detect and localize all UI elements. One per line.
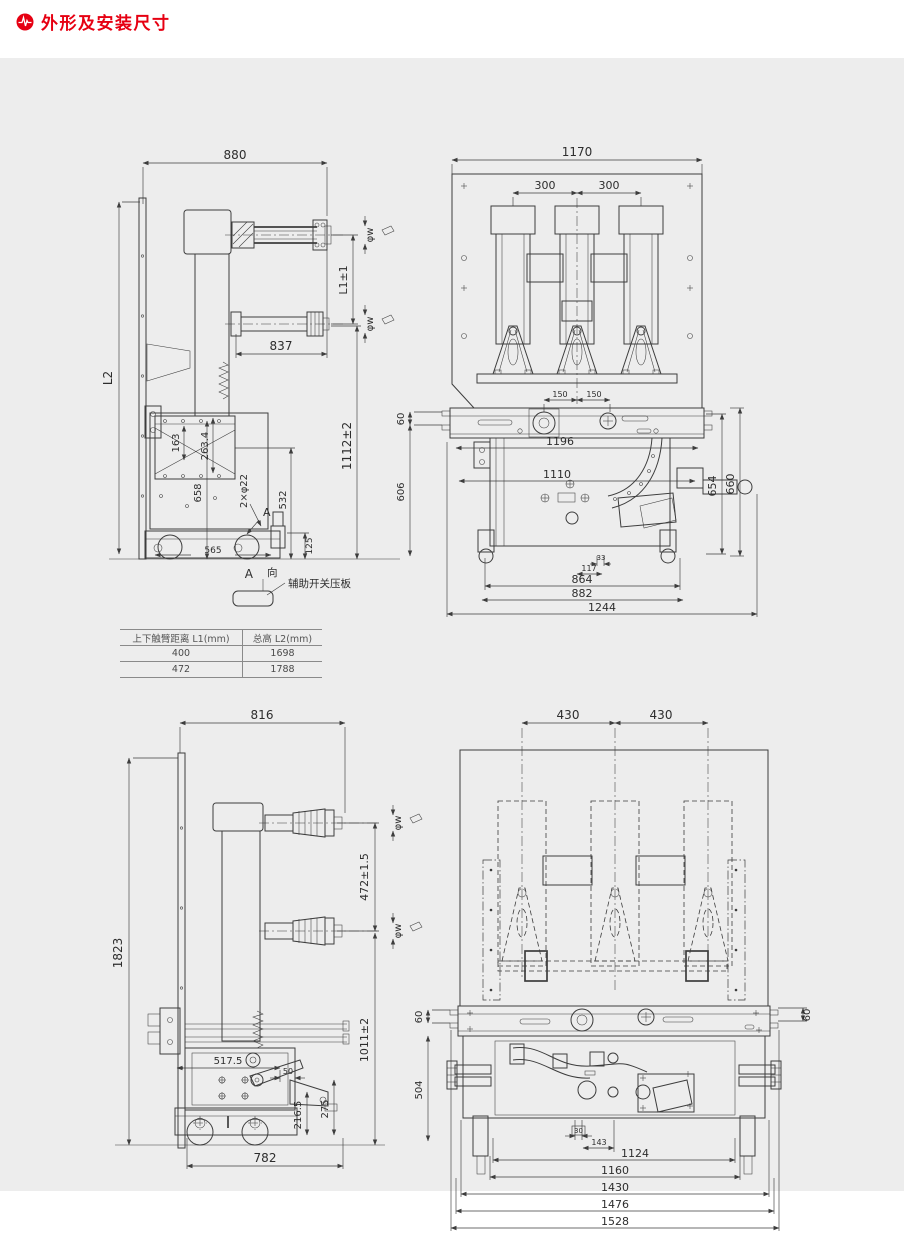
- drawing-bottom-side-view: 816 1823 472±1.5 φw φw 1011±2 517.5 50 2…: [85, 708, 445, 1249]
- dim-1112: 1112±2: [340, 422, 354, 470]
- dim-60: 60: [396, 413, 407, 426]
- table-row: 400 1698: [120, 646, 322, 662]
- dim-150-right: 150: [586, 390, 601, 399]
- bfv-dimensions: 430 430 60 60 504 30 143 1124 1160 1430 …: [414, 708, 813, 1231]
- tsv-dimensions: 880 L2 837 L1±1 φw φw 163 263.4 658 2×φ2…: [101, 148, 394, 559]
- dim-1430: 1430: [601, 1181, 629, 1194]
- tsv-structure: [109, 198, 400, 559]
- drawing-top-front-view: 1170 300 300 150 150 60 606 1196 1110 65…: [400, 146, 880, 624]
- cell-l2-1: 1788: [243, 662, 323, 678]
- dim-880: 880: [224, 148, 247, 162]
- drawing-bottom-front-view: 430 430 60 60 504 30 143 1124 1160 1430 …: [415, 708, 819, 1249]
- bsv-structure: [115, 753, 385, 1148]
- dim-430-left: 430: [557, 708, 580, 722]
- dim-117: 117: [581, 564, 596, 573]
- view-a-inner-label: A: [263, 506, 271, 519]
- dim-658: 658: [193, 483, 204, 502]
- dim-50: 50: [283, 1067, 293, 1076]
- page-title: 外形及安装尺寸: [41, 9, 171, 34]
- table-row: 472 1788: [120, 662, 322, 678]
- view-a-label: A: [245, 567, 254, 581]
- dim-L1: L1±1: [337, 265, 350, 294]
- dim-782: 782: [254, 1151, 277, 1165]
- drawing-canvas: 880 L2 837 L1±1 φw φw 163 263.4 658 2×φ2…: [0, 58, 904, 1191]
- dim-125: 125: [305, 537, 315, 554]
- dim-30: 30: [574, 1127, 583, 1135]
- dim-1160: 1160: [601, 1164, 629, 1177]
- dim-1124: 1124: [621, 1147, 649, 1160]
- dim-60-left: 60: [414, 1011, 425, 1024]
- dim-882: 882: [572, 587, 593, 600]
- dim-phiw-lower-b: φw: [393, 924, 404, 939]
- dim-300-right: 300: [599, 179, 620, 192]
- dim-837: 837: [270, 339, 293, 353]
- contact-arm-spec-table: 上下触臂距离 L1(mm) 总高 L2(mm) 400 1698 472 178…: [120, 629, 322, 678]
- dim-holes: 2×φ22: [239, 474, 250, 508]
- dim-60-right: 60: [802, 1009, 813, 1022]
- drawing-top-side-view: 880 L2 837 L1±1 φw φw 163 263.4 658 2×φ2…: [95, 146, 425, 624]
- view-a-direction: 向: [267, 566, 278, 579]
- dim-phiw-upper-b: φw: [393, 816, 404, 831]
- dim-816: 816: [251, 708, 274, 722]
- pole-1: [491, 206, 535, 374]
- dim-33: 33: [597, 554, 606, 562]
- cell-l1-0: 400: [120, 646, 243, 662]
- dim-472: 472±1.5: [358, 853, 371, 901]
- dim-phiw-lower: φw: [365, 317, 376, 332]
- dim-1244: 1244: [588, 601, 616, 614]
- dim-1476: 1476: [601, 1198, 629, 1211]
- dim-phiw-upper: φw: [365, 228, 376, 243]
- cell-l2-0: 1698: [243, 646, 323, 662]
- tfv-structure: [442, 174, 752, 563]
- dim-143: 143: [591, 1138, 606, 1147]
- dim-1170: 1170: [562, 145, 593, 159]
- dim-263: 263.4: [200, 432, 211, 461]
- page-header: 外形及安装尺寸: [0, 0, 904, 58]
- dim-660: 660: [724, 474, 737, 495]
- dim-864: 864: [572, 573, 593, 586]
- dim-1011: 1011±2: [358, 1018, 371, 1062]
- dim-606: 606: [396, 482, 407, 501]
- dim-275: 275: [320, 1099, 331, 1118]
- dim-430-right: 430: [650, 708, 673, 722]
- dim-504: 504: [414, 1080, 425, 1099]
- col-header-l1: 上下触臂距离 L1(mm): [120, 630, 243, 646]
- dim-5175: 517.5: [214, 1056, 243, 1067]
- dim-1823: 1823: [111, 938, 125, 969]
- cell-l1-1: 472: [120, 662, 243, 678]
- dim-300-left: 300: [535, 179, 556, 192]
- dim-L2: L2: [101, 371, 115, 385]
- col-header-l2: 总高 L2(mm): [243, 630, 323, 646]
- dim-565: 565: [204, 546, 221, 556]
- pulse-icon: [16, 13, 34, 31]
- dim-163: 163: [171, 433, 182, 452]
- dim-532: 532: [278, 490, 289, 509]
- table-header-row: 上下触臂距离 L1(mm) 总高 L2(mm): [120, 630, 322, 646]
- tsv-view-a-annotation: A A 向 辅助开关压板: [233, 506, 351, 606]
- dim-654: 654: [706, 476, 719, 497]
- dim-1110: 1110: [543, 468, 571, 481]
- dim-1528: 1528: [601, 1215, 629, 1228]
- bfv-structure: [447, 728, 781, 1174]
- aux-switch-plate-label: 辅助开关压板: [288, 577, 351, 590]
- dim-150-left: 150: [552, 390, 567, 399]
- dim-1196: 1196: [546, 435, 574, 448]
- pole-3: [619, 206, 663, 374]
- dim-2165: 216.5: [293, 1101, 304, 1130]
